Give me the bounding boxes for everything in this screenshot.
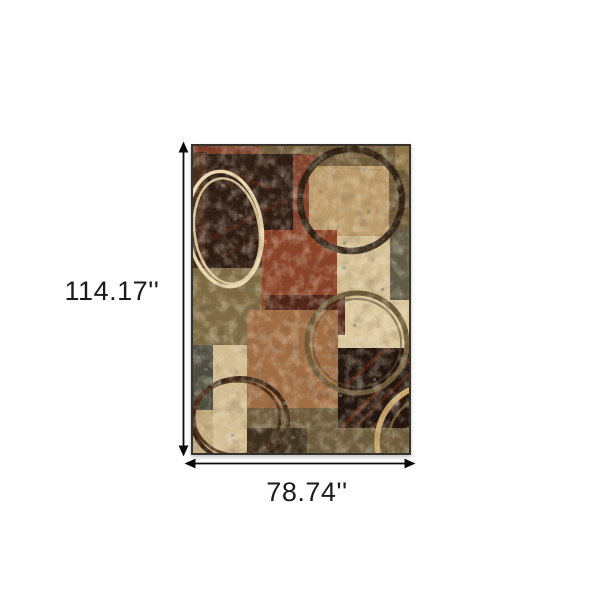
product-dimension-image: 114.17'' 78.74'' [0, 0, 600, 600]
arrow-down-icon [179, 446, 189, 457]
arrow-up-icon [179, 142, 189, 153]
rug-pattern [191, 144, 411, 455]
width-dimension-arrow [184, 457, 416, 470]
rug-image [191, 144, 411, 455]
arrow-right-icon [405, 459, 416, 469]
arrow-left-icon [185, 459, 196, 469]
height-dimension-arrow [177, 141, 190, 457]
height-value-label: 114.17'' [50, 277, 174, 305]
width-value-label: 78.74'' [245, 478, 369, 506]
